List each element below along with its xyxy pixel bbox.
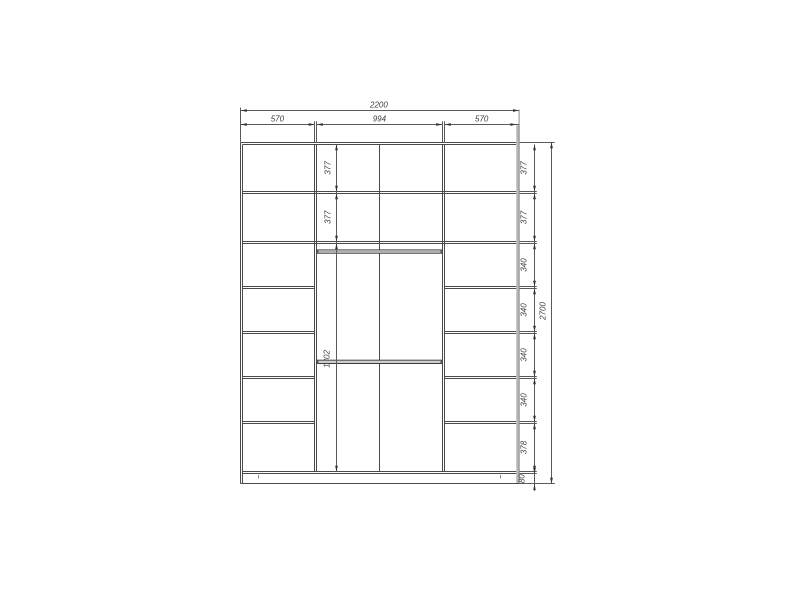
svg-text:570: 570 (475, 115, 489, 124)
svg-text:340: 340 (520, 303, 529, 317)
svg-text:378: 378 (520, 440, 529, 454)
svg-text:1802: 1802 (323, 350, 332, 368)
svg-text:994: 994 (373, 115, 387, 124)
svg-text:2200: 2200 (369, 101, 388, 110)
svg-text:377: 377 (323, 161, 332, 175)
svg-text:340: 340 (520, 393, 529, 407)
svg-text:377: 377 (323, 210, 332, 224)
svg-text:2700: 2700 (539, 302, 548, 321)
svg-text:340: 340 (520, 348, 529, 362)
svg-text:377: 377 (520, 210, 529, 224)
svg-text:570: 570 (271, 115, 285, 124)
svg-text:377: 377 (520, 161, 529, 175)
svg-text:340: 340 (520, 258, 529, 272)
svg-text:80: 80 (518, 474, 527, 483)
